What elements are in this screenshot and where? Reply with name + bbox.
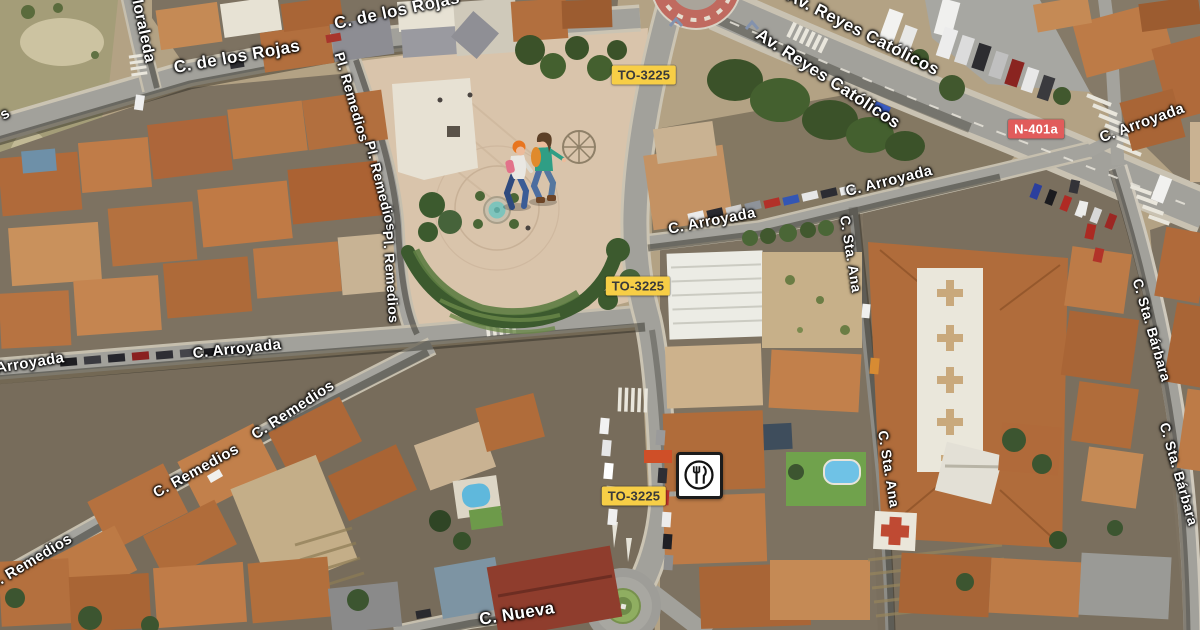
road-label: C. de los Rojas <box>332 0 461 34</box>
route-badge: TO-3225 <box>602 487 666 506</box>
road-label: Av. Reyes Católicos <box>784 0 943 80</box>
map-labels-layer: MoraledaC. de los RojasC. de los RojasAv… <box>0 0 1200 630</box>
road-label: C. Nueva <box>478 598 556 630</box>
road-label: C. Sta. Ana <box>875 429 903 508</box>
road-label: C. Arroyada <box>192 336 282 362</box>
route-badge: TO-3225 <box>612 66 676 85</box>
poi-restaurant[interactable] <box>676 452 723 499</box>
road-label: C. Remedios <box>0 530 75 594</box>
road-label: Pl. Remedios <box>362 139 400 233</box>
road-label: C. Sta. Ana <box>837 214 865 293</box>
road-label: C. Arroyada <box>844 162 934 200</box>
route-badge: TO-3225 <box>606 277 670 296</box>
route-badge: N-401a <box>1008 120 1064 139</box>
road-label: Pl. Remedios <box>380 230 402 324</box>
road-label: C. Sta. Bárbara <box>1157 421 1200 528</box>
road-label: s <box>0 104 13 123</box>
road-label: C. Remedios <box>248 377 337 443</box>
road-label: C. de los Rojas <box>172 36 301 78</box>
road-label: C. Arroyada <box>1097 100 1186 146</box>
road-label: C. Sta. Bárbara <box>1130 277 1175 384</box>
fork-knife-icon <box>679 455 719 495</box>
road-label: Arroyada <box>0 349 65 377</box>
road-label: Pl. Remedios <box>332 50 373 144</box>
road-label: C. Remedios <box>150 440 242 501</box>
road-label: Av. Reyes Católicos <box>752 25 904 133</box>
map-canvas[interactable]: MoraledaC. de los RojasC. de los RojasAv… <box>0 0 1200 630</box>
road-label: Moraleda <box>126 0 159 65</box>
road-label: C. Arroyada <box>667 204 757 238</box>
